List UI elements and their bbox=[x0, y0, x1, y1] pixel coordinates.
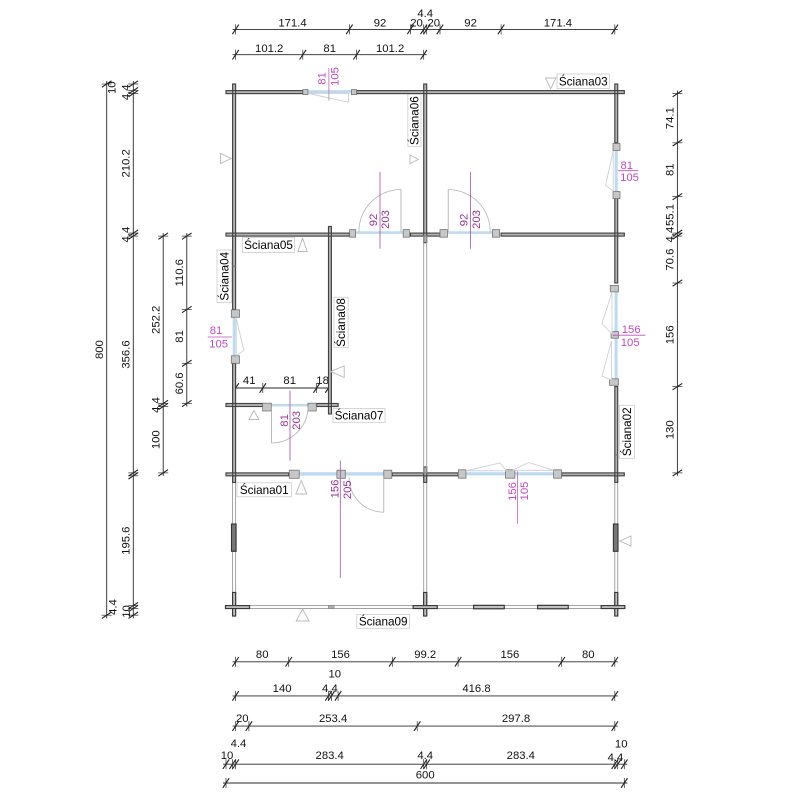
svg-text:171.4: 171.4 bbox=[278, 18, 306, 30]
svg-text:416.8: 416.8 bbox=[462, 683, 490, 695]
svg-text:203: 203 bbox=[291, 411, 303, 430]
svg-text:10: 10 bbox=[221, 750, 234, 762]
svg-text:203: 203 bbox=[380, 210, 392, 229]
svg-text:283.4: 283.4 bbox=[316, 750, 344, 762]
svg-text:81: 81 bbox=[317, 72, 329, 85]
svg-text:92: 92 bbox=[374, 18, 387, 30]
svg-text:356.6: 356.6 bbox=[120, 340, 132, 368]
svg-text:92: 92 bbox=[368, 214, 380, 227]
svg-text:Ściana03: Ściana03 bbox=[559, 75, 608, 88]
svg-text:4.4: 4.4 bbox=[608, 752, 624, 764]
svg-text:600: 600 bbox=[416, 770, 435, 782]
svg-text:Ściana02: Ściana02 bbox=[621, 407, 634, 456]
svg-text:252.2: 252.2 bbox=[150, 306, 162, 334]
svg-text:156: 156 bbox=[331, 649, 350, 661]
svg-text:99.2: 99.2 bbox=[414, 649, 436, 661]
svg-text:156: 156 bbox=[500, 649, 519, 661]
svg-text:20: 20 bbox=[236, 713, 249, 725]
svg-text:110.6: 110.6 bbox=[174, 259, 186, 286]
svg-text:Ściana05: Ściana05 bbox=[244, 239, 293, 252]
svg-text:4.4: 4.4 bbox=[150, 397, 162, 413]
svg-text:105: 105 bbox=[519, 482, 531, 501]
svg-text:800: 800 bbox=[94, 340, 106, 359]
svg-text:105: 105 bbox=[621, 337, 640, 349]
svg-text:Ściana07: Ściana07 bbox=[335, 410, 384, 423]
svg-text:253.4: 253.4 bbox=[319, 713, 347, 725]
svg-text:Ściana08: Ściana08 bbox=[335, 298, 348, 347]
svg-text:92: 92 bbox=[458, 214, 470, 227]
svg-text:41: 41 bbox=[243, 375, 256, 387]
svg-text:297.8: 297.8 bbox=[502, 713, 530, 725]
svg-text:80: 80 bbox=[582, 649, 595, 661]
svg-text:81: 81 bbox=[323, 43, 336, 55]
svg-text:105: 105 bbox=[620, 172, 639, 184]
svg-text:4.4: 4.4 bbox=[417, 750, 433, 762]
svg-text:81: 81 bbox=[174, 330, 186, 343]
svg-text:283.4: 283.4 bbox=[507, 750, 535, 762]
svg-text:4.4: 4.4 bbox=[322, 683, 338, 695]
svg-text:92: 92 bbox=[464, 18, 477, 30]
svg-text:156: 156 bbox=[507, 482, 519, 501]
svg-text:156: 156 bbox=[665, 325, 677, 344]
svg-text:Ściana01: Ściana01 bbox=[240, 484, 289, 497]
svg-text:140: 140 bbox=[273, 683, 292, 695]
svg-text:4.4: 4.4 bbox=[120, 227, 132, 243]
svg-text:105: 105 bbox=[209, 338, 228, 350]
svg-text:171.4: 171.4 bbox=[544, 18, 572, 30]
svg-text:130: 130 bbox=[665, 420, 677, 439]
svg-text:74.1: 74.1 bbox=[665, 107, 677, 129]
svg-text:81: 81 bbox=[210, 325, 223, 337]
svg-text:4.4: 4.4 bbox=[108, 599, 120, 615]
svg-text:81: 81 bbox=[621, 160, 634, 172]
svg-text:10: 10 bbox=[615, 739, 628, 751]
svg-text:101.2: 101.2 bbox=[255, 43, 283, 55]
svg-text:10: 10 bbox=[329, 668, 342, 680]
svg-text:70.6: 70.6 bbox=[665, 249, 677, 271]
svg-text:81: 81 bbox=[283, 375, 296, 387]
svg-text:Ściana09: Ściana09 bbox=[359, 615, 408, 628]
svg-text:203: 203 bbox=[471, 210, 483, 229]
svg-text:101.2: 101.2 bbox=[376, 43, 404, 55]
svg-text:4.4: 4.4 bbox=[417, 8, 433, 20]
svg-text:80: 80 bbox=[256, 649, 269, 661]
svg-text:55.1: 55.1 bbox=[665, 204, 677, 226]
svg-text:105: 105 bbox=[330, 67, 342, 86]
svg-text:10: 10 bbox=[107, 81, 119, 94]
svg-text:156: 156 bbox=[329, 480, 341, 499]
svg-text:10: 10 bbox=[121, 605, 133, 618]
svg-text:81: 81 bbox=[665, 163, 677, 176]
svg-text:100: 100 bbox=[150, 430, 162, 449]
svg-text:4.4: 4.4 bbox=[231, 738, 247, 750]
svg-text:60.6: 60.6 bbox=[174, 372, 186, 394]
svg-text:195.6: 195.6 bbox=[120, 527, 132, 555]
svg-text:Ściana06: Ściana06 bbox=[409, 96, 422, 145]
svg-text:156: 156 bbox=[622, 324, 641, 336]
svg-text:4.4: 4.4 bbox=[665, 227, 677, 243]
svg-text:205: 205 bbox=[342, 480, 354, 499]
svg-text:Ściana04: Ściana04 bbox=[218, 251, 231, 300]
svg-text:18: 18 bbox=[316, 375, 329, 387]
svg-text:81: 81 bbox=[279, 414, 291, 427]
svg-text:4.4: 4.4 bbox=[120, 84, 132, 100]
svg-text:210.2: 210.2 bbox=[120, 149, 132, 177]
